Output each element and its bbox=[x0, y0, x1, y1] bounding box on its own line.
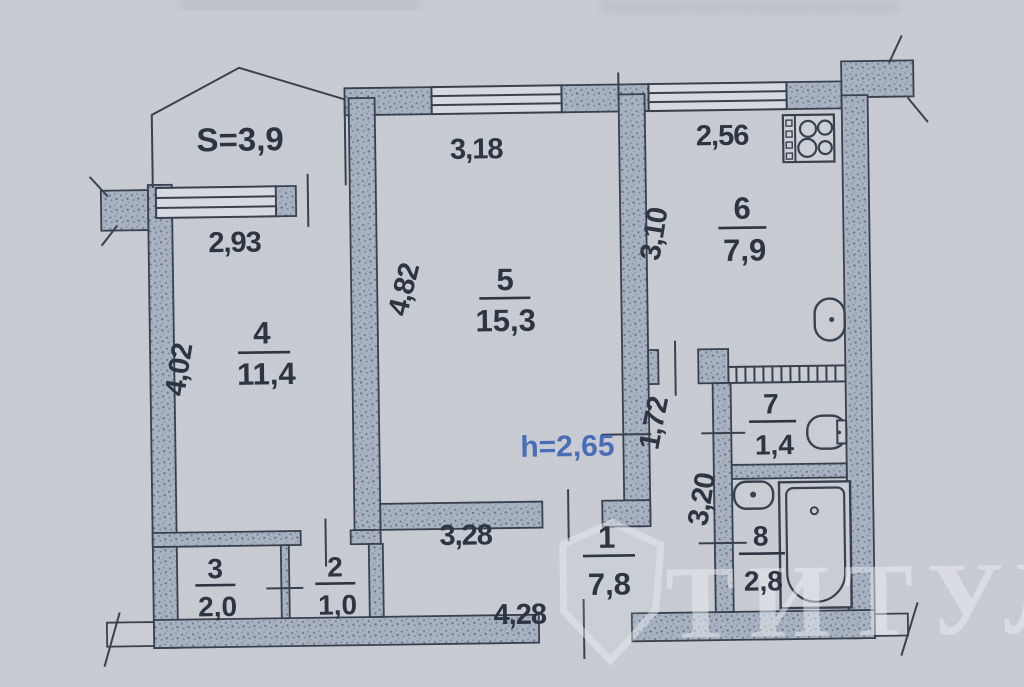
room7-number: 7 bbox=[763, 388, 779, 419]
wall-segment bbox=[349, 98, 381, 530]
room6-number: 6 bbox=[733, 191, 751, 226]
room5-number: 5 bbox=[496, 262, 514, 297]
room8-number: 8 bbox=[753, 520, 769, 551]
wall-segment bbox=[732, 463, 847, 479]
kitchen-sink-icon bbox=[814, 298, 845, 340]
wall-segment bbox=[698, 349, 728, 383]
room5-area: 15,3 bbox=[475, 303, 536, 339]
room5-width-dim: 3,18 bbox=[450, 133, 504, 166]
floor-plan-canvas: ТИТУЛ S=3,9 2,93 3,18 2,56 4,02 4,82 3,1… bbox=[0, 0, 1024, 687]
scan-bleed-smudge bbox=[180, 0, 420, 10]
scan-bleed-smudge bbox=[600, 0, 900, 14]
ceiling-height-label: h=2,65 bbox=[520, 430, 615, 464]
room4-width-dim: 2,93 bbox=[208, 226, 262, 259]
room6-area: 7,9 bbox=[723, 232, 767, 268]
room5-window-icon bbox=[431, 85, 561, 114]
room8-area: 2,8 bbox=[744, 565, 783, 597]
hall-width-dim: 3,28 bbox=[439, 519, 493, 552]
balcony-window-icon bbox=[156, 186, 296, 218]
wall-segment bbox=[841, 60, 913, 97]
wall-segment bbox=[648, 350, 658, 384]
wall-segment bbox=[351, 530, 381, 544]
toilet-icon bbox=[807, 415, 846, 449]
room2-number: 2 bbox=[327, 551, 343, 582]
room2-area: 1,0 bbox=[318, 589, 357, 621]
wall-segment bbox=[281, 545, 290, 618]
room4-number: 4 bbox=[253, 315, 271, 350]
balcony-area-label: S=3,9 bbox=[196, 120, 284, 158]
kitchen-window-icon bbox=[648, 82, 786, 111]
room1-number: 1 bbox=[598, 520, 616, 555]
stove-icon bbox=[783, 114, 835, 162]
room4-area: 11,4 bbox=[237, 356, 297, 392]
scanned-floor-plan-page: ТИТУЛ S=3,9 2,93 3,18 2,56 4,02 4,82 3,1… bbox=[0, 0, 1024, 687]
wall-segment bbox=[786, 81, 841, 109]
kitchen-width-dim: 2,56 bbox=[696, 120, 750, 153]
room7-area: 1,4 bbox=[755, 429, 795, 461]
room3-area: 2,0 bbox=[198, 591, 237, 623]
wall-segment bbox=[369, 544, 384, 617]
wall-segment bbox=[619, 94, 651, 526]
hall-length-dim: 4,28 bbox=[493, 599, 547, 632]
washbasin-icon bbox=[734, 481, 773, 509]
room3-number: 3 bbox=[207, 553, 223, 584]
ventilation-shaft-icon bbox=[728, 365, 845, 383]
room1-area: 7,8 bbox=[588, 566, 632, 602]
watermark-text: ТИТУЛ bbox=[665, 540, 1024, 661]
wall-segment bbox=[153, 531, 301, 547]
